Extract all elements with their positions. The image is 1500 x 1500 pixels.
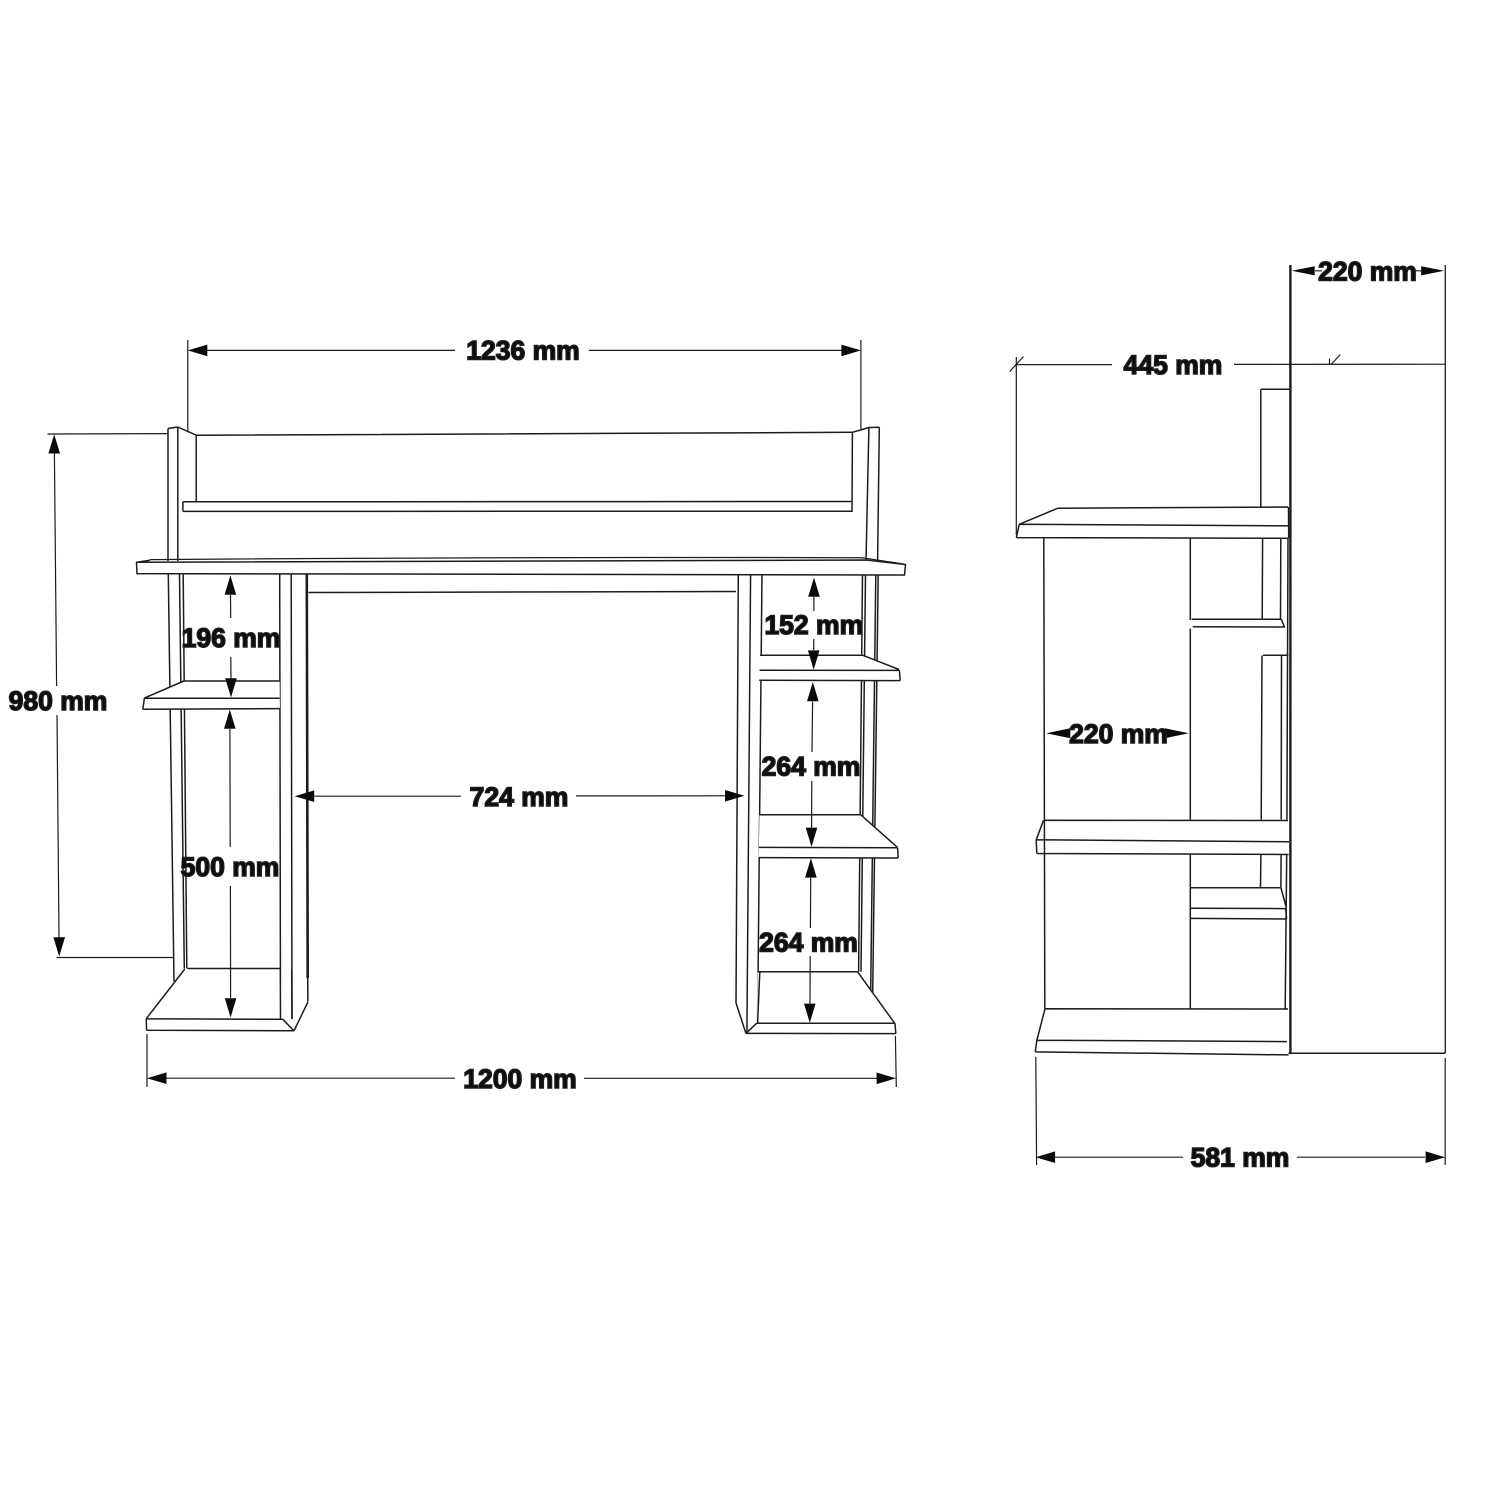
svg-text:980 mm: 980 mm [9,686,108,716]
svg-text:1200 mm: 1200 mm [463,1064,576,1094]
svg-text:220 mm: 220 mm [1069,719,1168,749]
svg-text:264 mm: 264 mm [762,752,861,782]
svg-text:500 mm: 500 mm [181,852,280,882]
svg-text:581 mm: 581 mm [1191,1143,1290,1173]
svg-text:196 mm: 196 mm [182,623,281,653]
svg-text:445 mm: 445 mm [1124,350,1223,380]
svg-text:220 mm: 220 mm [1318,257,1417,287]
svg-text:264 mm: 264 mm [759,928,858,958]
svg-text:724 mm: 724 mm [470,782,569,812]
svg-text:1236 mm: 1236 mm [466,336,579,366]
svg-text:152 mm: 152 mm [764,610,863,640]
